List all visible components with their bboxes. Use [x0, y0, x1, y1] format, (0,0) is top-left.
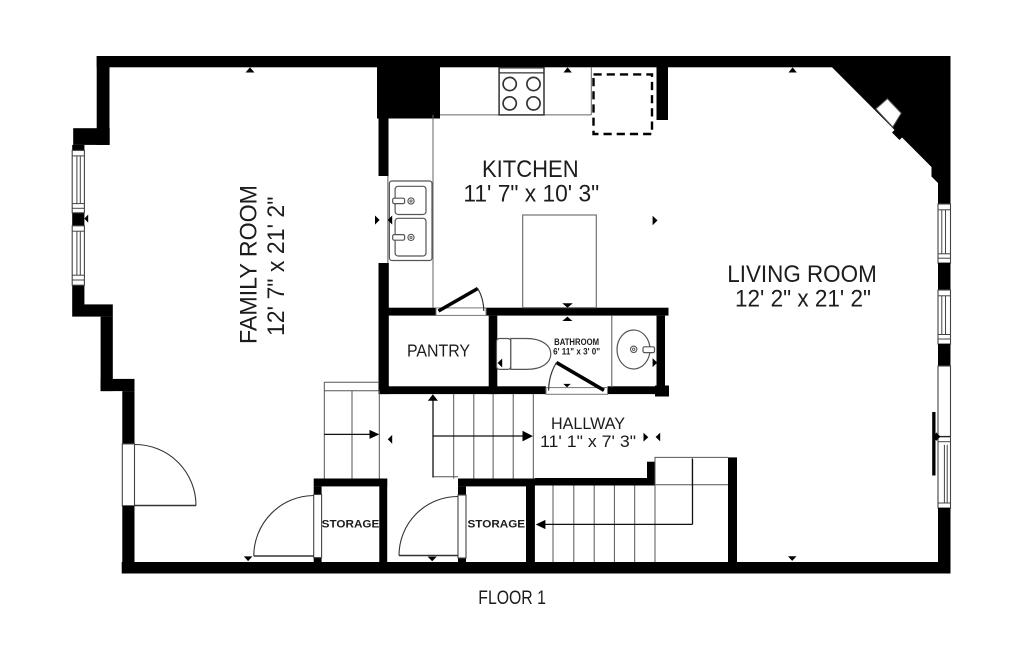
svg-text:12' 2" x 21' 2": 12' 2" x 21' 2"	[735, 286, 871, 313]
svg-text:HALLWAY: HALLWAY	[551, 414, 625, 433]
svg-text:BATHROOM: BATHROOM	[554, 337, 599, 347]
svg-text:KITCHEN: KITCHEN	[482, 156, 579, 183]
svg-text:6' 11" x 3' 0": 6' 11" x 3' 0"	[553, 347, 600, 357]
svg-text:FAMILY ROOM: FAMILY ROOM	[235, 185, 262, 344]
svg-text:PANTRY: PANTRY	[407, 341, 470, 361]
svg-text:12' 7" x 21' 2": 12' 7" x 21' 2"	[263, 197, 290, 337]
svg-text:LIVING ROOM: LIVING ROOM	[727, 261, 877, 288]
svg-text:STORAGE: STORAGE	[322, 519, 380, 531]
svg-text:STORAGE: STORAGE	[468, 519, 526, 531]
svg-text:FLOOR 1: FLOOR 1	[478, 588, 546, 609]
svg-text:11' 1" x 7' 3": 11' 1" x 7' 3"	[540, 432, 636, 451]
svg-text:11' 7" x 10' 3": 11' 7" x 10' 3"	[463, 181, 599, 208]
